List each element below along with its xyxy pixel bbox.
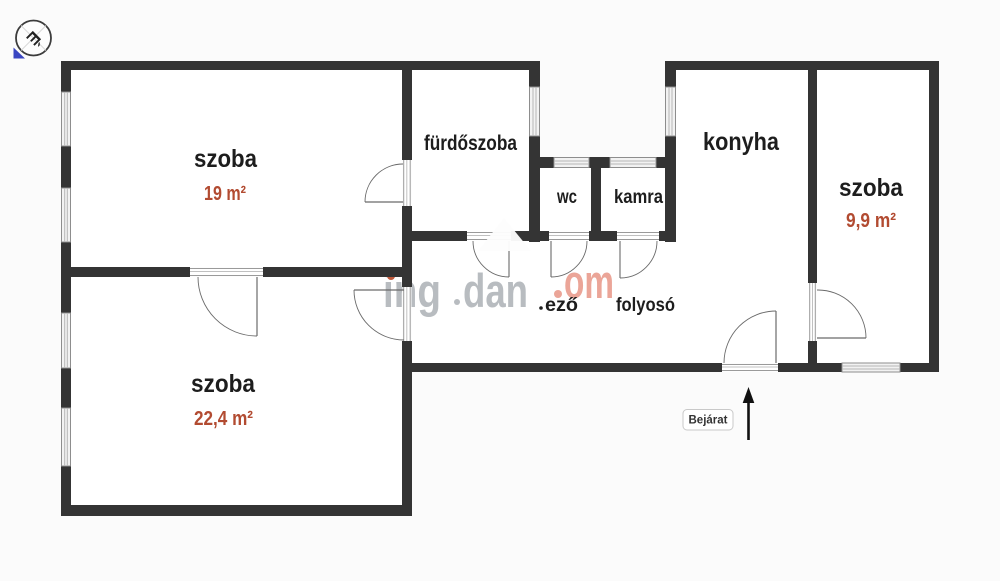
svg-text:ező: ező <box>545 295 578 316</box>
svg-text:szoba: szoba <box>839 174 904 202</box>
svg-text:folyosó: folyosó <box>616 295 675 316</box>
svg-text:9,9 m²: 9,9 m² <box>846 210 896 232</box>
svg-text:kamra: kamra <box>614 187 663 208</box>
svg-text:Bejárat: Bejárat <box>689 415 728 427</box>
svg-text:szoba: szoba <box>191 370 256 398</box>
svg-text:dan: dan <box>463 264 528 317</box>
svg-text:22,4 m²: 22,4 m² <box>194 408 253 430</box>
svg-text:wc: wc <box>556 187 577 208</box>
svg-text:fürdőszoba: fürdőszoba <box>424 132 517 155</box>
svg-text:szoba: szoba <box>194 145 258 173</box>
svg-text:19 m²: 19 m² <box>204 183 246 205</box>
svg-text:konyha: konyha <box>703 128 780 156</box>
